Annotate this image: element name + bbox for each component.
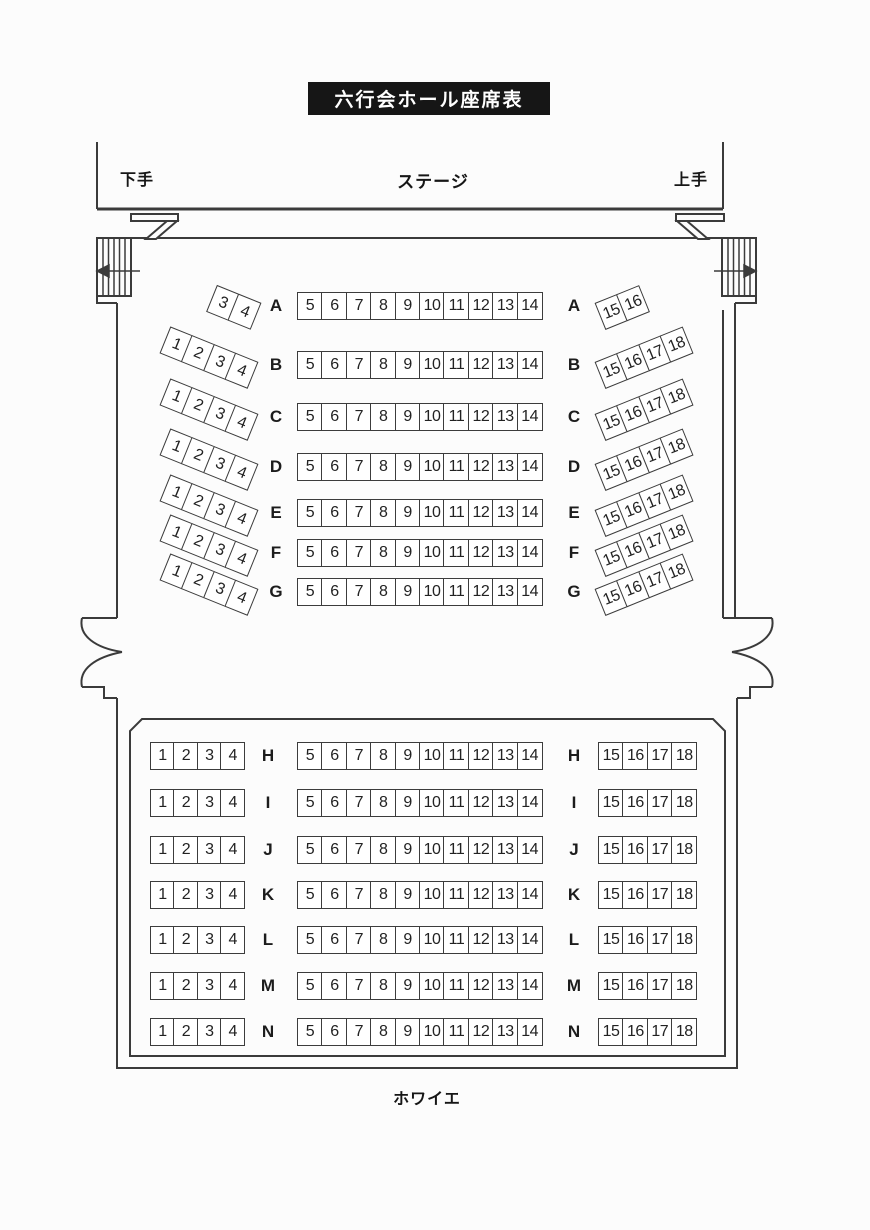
seat-block-B: 567891011121314 [297, 351, 543, 379]
row-label-I-left: I [266, 793, 271, 813]
row-label-H-right: H [568, 746, 580, 766]
seat-N8: 8 [370, 1018, 396, 1046]
seat-A8: 8 [370, 292, 396, 320]
seating-chart-page: 六行会ホール座席表 ステージ 下手 上手 ホワイエ 34567891011121… [0, 0, 870, 1230]
seat-block-N: 15161718 [598, 1018, 697, 1046]
seat-N12: 12 [468, 1018, 494, 1046]
seat-I8: 8 [370, 789, 396, 817]
seat-F14: 14 [517, 539, 543, 567]
seat-K3: 3 [197, 881, 222, 909]
seat-N14: 14 [517, 1018, 543, 1046]
seat-E9: 9 [395, 499, 421, 527]
seat-M1: 1 [150, 972, 175, 1000]
seat-block-M: 1234 [150, 972, 245, 1000]
seat-I4: 4 [220, 789, 245, 817]
seat-block-I: 1234 [150, 789, 245, 817]
seat-block-F: 567891011121314 [297, 539, 543, 567]
row-label-G-left: G [269, 582, 282, 602]
seat-block-K: 1234 [150, 881, 245, 909]
seat-D13: 13 [492, 453, 518, 481]
seat-A11: 11 [443, 292, 469, 320]
seat-J1: 1 [150, 836, 175, 864]
seat-L4: 4 [220, 926, 245, 954]
seat-A9: 9 [395, 292, 421, 320]
seat-block-M: 15161718 [598, 972, 697, 1000]
seat-J10: 10 [419, 836, 445, 864]
seat-M10: 10 [419, 972, 445, 1000]
seat-H17: 17 [647, 742, 673, 770]
seat-H18: 18 [671, 742, 697, 770]
row-label-F-right: F [569, 543, 579, 563]
seat-block-I: 567891011121314 [297, 789, 543, 817]
seat-L7: 7 [346, 926, 372, 954]
seat-block-C: 567891011121314 [297, 403, 543, 431]
seat-N17: 17 [647, 1018, 673, 1046]
row-label-A-right: A [568, 296, 580, 316]
seat-M8: 8 [370, 972, 396, 1000]
seat-G14: 14 [517, 578, 543, 606]
seat-K17: 17 [647, 881, 673, 909]
seat-block-J: 15161718 [598, 836, 697, 864]
row-label-E-left: E [270, 503, 281, 523]
seat-H5: 5 [297, 742, 323, 770]
seat-K18: 18 [671, 881, 697, 909]
seat-J2: 2 [173, 836, 198, 864]
seat-J5: 5 [297, 836, 323, 864]
seat-block-H: 15161718 [598, 742, 697, 770]
seat-C13: 13 [492, 403, 518, 431]
seat-J13: 13 [492, 836, 518, 864]
seat-L13: 13 [492, 926, 518, 954]
seat-H6: 6 [321, 742, 347, 770]
seat-H12: 12 [468, 742, 494, 770]
seat-C8: 8 [370, 403, 396, 431]
seat-G11: 11 [443, 578, 469, 606]
seat-J16: 16 [622, 836, 648, 864]
seat-K16: 16 [622, 881, 648, 909]
seat-block-J: 567891011121314 [297, 836, 543, 864]
seat-H11: 11 [443, 742, 469, 770]
seat-M16: 16 [622, 972, 648, 1000]
seat-A12: 12 [468, 292, 494, 320]
seat-M3: 3 [197, 972, 222, 1000]
seat-N13: 13 [492, 1018, 518, 1046]
seat-A13: 13 [492, 292, 518, 320]
row-label-B-left: B [270, 355, 282, 375]
seat-block-K: 567891011121314 [297, 881, 543, 909]
seat-K13: 13 [492, 881, 518, 909]
seat-block-N: 1234 [150, 1018, 245, 1046]
seat-E14: 14 [517, 499, 543, 527]
seat-E7: 7 [346, 499, 372, 527]
row-label-B-right: B [568, 355, 580, 375]
seat-E8: 8 [370, 499, 396, 527]
seat-D5: 5 [297, 453, 323, 481]
seat-K2: 2 [173, 881, 198, 909]
seat-N6: 6 [321, 1018, 347, 1046]
seat-J12: 12 [468, 836, 494, 864]
seat-C11: 11 [443, 403, 469, 431]
seat-A7: 7 [346, 292, 372, 320]
seat-B11: 11 [443, 351, 469, 379]
row-label-L-left: L [263, 930, 273, 950]
seat-K6: 6 [321, 881, 347, 909]
seat-B7: 7 [346, 351, 372, 379]
seat-N18: 18 [671, 1018, 697, 1046]
row-label-G-right: G [567, 582, 580, 602]
seat-L18: 18 [671, 926, 697, 954]
seat-H15: 15 [598, 742, 624, 770]
seat-block-A: 1516 [595, 284, 651, 329]
seat-F10: 10 [419, 539, 445, 567]
seat-L16: 16 [622, 926, 648, 954]
seat-H4: 4 [220, 742, 245, 770]
seat-G10: 10 [419, 578, 445, 606]
seat-K11: 11 [443, 881, 469, 909]
seat-F13: 13 [492, 539, 518, 567]
seat-N3: 3 [197, 1018, 222, 1046]
seat-H2: 2 [173, 742, 198, 770]
seat-M17: 17 [647, 972, 673, 1000]
seat-G9: 9 [395, 578, 421, 606]
seat-M5: 5 [297, 972, 323, 1000]
seat-M9: 9 [395, 972, 421, 1000]
row-label-N-left: N [262, 1022, 274, 1042]
seat-M13: 13 [492, 972, 518, 1000]
seat-block-M: 567891011121314 [297, 972, 543, 1000]
seat-I9: 9 [395, 789, 421, 817]
row-label-I-right: I [572, 793, 577, 813]
seat-I7: 7 [346, 789, 372, 817]
seat-J11: 11 [443, 836, 469, 864]
seat-block-G: 567891011121314 [297, 578, 543, 606]
seat-K4: 4 [220, 881, 245, 909]
seat-J17: 17 [647, 836, 673, 864]
seat-I3: 3 [197, 789, 222, 817]
seat-block-K: 15161718 [598, 881, 697, 909]
row-label-A-left: A [270, 296, 282, 316]
seat-I16: 16 [622, 789, 648, 817]
seat-L3: 3 [197, 926, 222, 954]
page-title: 六行会ホール座席表 [308, 82, 550, 115]
seat-M12: 12 [468, 972, 494, 1000]
seat-C6: 6 [321, 403, 347, 431]
seat-H1: 1 [150, 742, 175, 770]
seat-block-L: 1234 [150, 926, 245, 954]
stage-label: ステージ [397, 168, 469, 193]
seat-M6: 6 [321, 972, 347, 1000]
seat-E6: 6 [321, 499, 347, 527]
seat-N4: 4 [220, 1018, 245, 1046]
seat-B9: 9 [395, 351, 421, 379]
seat-I10: 10 [419, 789, 445, 817]
seat-I15: 15 [598, 789, 624, 817]
seat-E10: 10 [419, 499, 445, 527]
seat-J14: 14 [517, 836, 543, 864]
seat-D10: 10 [419, 453, 445, 481]
seat-A6: 6 [321, 292, 347, 320]
seat-I11: 11 [443, 789, 469, 817]
seat-block-H: 1234 [150, 742, 245, 770]
seat-C9: 9 [395, 403, 421, 431]
seat-block-N: 567891011121314 [297, 1018, 543, 1046]
seat-J7: 7 [346, 836, 372, 864]
row-label-F-left: F [271, 543, 281, 563]
seat-I13: 13 [492, 789, 518, 817]
seat-K8: 8 [370, 881, 396, 909]
seat-M2: 2 [173, 972, 198, 1000]
seat-G6: 6 [321, 578, 347, 606]
seat-D9: 9 [395, 453, 421, 481]
seat-B6: 6 [321, 351, 347, 379]
seat-block-A: 567891011121314 [297, 292, 543, 320]
row-label-C-right: C [568, 407, 580, 427]
row-label-K-right: K [568, 885, 580, 905]
seat-block-E: 567891011121314 [297, 499, 543, 527]
seat-K10: 10 [419, 881, 445, 909]
seat-K12: 12 [468, 881, 494, 909]
seat-block-J: 1234 [150, 836, 245, 864]
seat-K9: 9 [395, 881, 421, 909]
seat-J18: 18 [671, 836, 697, 864]
seat-C10: 10 [419, 403, 445, 431]
seat-E11: 11 [443, 499, 469, 527]
row-label-C-left: C [270, 407, 282, 427]
seat-C12: 12 [468, 403, 494, 431]
row-label-J-right: J [569, 840, 578, 860]
seat-L14: 14 [517, 926, 543, 954]
seat-K5: 5 [297, 881, 323, 909]
seat-L6: 6 [321, 926, 347, 954]
seat-L9: 9 [395, 926, 421, 954]
seat-L1: 1 [150, 926, 175, 954]
seat-E13: 13 [492, 499, 518, 527]
seat-N1: 1 [150, 1018, 175, 1046]
seat-L17: 17 [647, 926, 673, 954]
row-label-D-right: D [568, 457, 580, 477]
seat-L12: 12 [468, 926, 494, 954]
seat-L2: 2 [173, 926, 198, 954]
seat-H13: 13 [492, 742, 518, 770]
row-label-N-right: N [568, 1022, 580, 1042]
seat-B5: 5 [297, 351, 323, 379]
seat-B8: 8 [370, 351, 396, 379]
seat-N10: 10 [419, 1018, 445, 1046]
seat-K7: 7 [346, 881, 372, 909]
seat-J4: 4 [220, 836, 245, 864]
seat-D6: 6 [321, 453, 347, 481]
seat-G7: 7 [346, 578, 372, 606]
seat-K1: 1 [150, 881, 175, 909]
seat-F5: 5 [297, 539, 323, 567]
seat-E5: 5 [297, 499, 323, 527]
seat-M15: 15 [598, 972, 624, 1000]
seat-D7: 7 [346, 453, 372, 481]
seat-H9: 9 [395, 742, 421, 770]
seat-M4: 4 [220, 972, 245, 1000]
seat-F12: 12 [468, 539, 494, 567]
seat-M11: 11 [443, 972, 469, 1000]
seat-G13: 13 [492, 578, 518, 606]
seat-E12: 12 [468, 499, 494, 527]
seat-L11: 11 [443, 926, 469, 954]
seat-L15: 15 [598, 926, 624, 954]
seat-M18: 18 [671, 972, 697, 1000]
seat-M14: 14 [517, 972, 543, 1000]
seat-J6: 6 [321, 836, 347, 864]
seat-L8: 8 [370, 926, 396, 954]
seat-I14: 14 [517, 789, 543, 817]
seat-block-L: 15161718 [598, 926, 697, 954]
seat-F6: 6 [321, 539, 347, 567]
seat-F11: 11 [443, 539, 469, 567]
row-label-M-left: M [261, 976, 275, 996]
seat-G5: 5 [297, 578, 323, 606]
seat-B14: 14 [517, 351, 543, 379]
seat-L5: 5 [297, 926, 323, 954]
seat-F9: 9 [395, 539, 421, 567]
seat-block-A: 34 [206, 284, 262, 329]
seat-block-H: 567891011121314 [297, 742, 543, 770]
seat-N7: 7 [346, 1018, 372, 1046]
seat-I6: 6 [321, 789, 347, 817]
seat-N9: 9 [395, 1018, 421, 1046]
seat-H10: 10 [419, 742, 445, 770]
stage-right-label: 上手 [674, 166, 708, 190]
seat-I5: 5 [297, 789, 323, 817]
seat-L10: 10 [419, 926, 445, 954]
seat-F8: 8 [370, 539, 396, 567]
row-label-E-right: E [568, 503, 579, 523]
seat-J15: 15 [598, 836, 624, 864]
seat-H8: 8 [370, 742, 396, 770]
seat-C7: 7 [346, 403, 372, 431]
seat-F7: 7 [346, 539, 372, 567]
seat-B12: 12 [468, 351, 494, 379]
row-label-L-right: L [569, 930, 579, 950]
seat-N15: 15 [598, 1018, 624, 1046]
seat-N16: 16 [622, 1018, 648, 1046]
seat-G12: 12 [468, 578, 494, 606]
seat-I18: 18 [671, 789, 697, 817]
seat-G8: 8 [370, 578, 396, 606]
seat-C5: 5 [297, 403, 323, 431]
row-label-J-left: J [263, 840, 272, 860]
seat-D8: 8 [370, 453, 396, 481]
row-label-K-left: K [262, 885, 274, 905]
row-label-H-left: H [262, 746, 274, 766]
seat-N2: 2 [173, 1018, 198, 1046]
seat-A10: 10 [419, 292, 445, 320]
seat-H16: 16 [622, 742, 648, 770]
row-label-D-left: D [270, 457, 282, 477]
seat-N11: 11 [443, 1018, 469, 1046]
seat-M7: 7 [346, 972, 372, 1000]
seat-D11: 11 [443, 453, 469, 481]
seat-B13: 13 [492, 351, 518, 379]
seat-I17: 17 [647, 789, 673, 817]
seat-D14: 14 [517, 453, 543, 481]
stage-left-label: 下手 [120, 166, 154, 190]
seat-block-I: 15161718 [598, 789, 697, 817]
row-label-M-right: M [567, 976, 581, 996]
seat-C14: 14 [517, 403, 543, 431]
seat-block-L: 567891011121314 [297, 926, 543, 954]
seat-I1: 1 [150, 789, 175, 817]
seat-A5: 5 [297, 292, 323, 320]
seat-I2: 2 [173, 789, 198, 817]
seat-H3: 3 [197, 742, 222, 770]
seat-J8: 8 [370, 836, 396, 864]
seat-I12: 12 [468, 789, 494, 817]
seat-D12: 12 [468, 453, 494, 481]
seat-J9: 9 [395, 836, 421, 864]
seat-N5: 5 [297, 1018, 323, 1046]
seat-block-D: 567891011121314 [297, 453, 543, 481]
seat-B10: 10 [419, 351, 445, 379]
seat-K14: 14 [517, 881, 543, 909]
foyer-label: ホワイエ [393, 1085, 461, 1109]
seat-H14: 14 [517, 742, 543, 770]
seat-H7: 7 [346, 742, 372, 770]
seat-A14: 14 [517, 292, 543, 320]
seat-J3: 3 [197, 836, 222, 864]
seat-K15: 15 [598, 881, 624, 909]
